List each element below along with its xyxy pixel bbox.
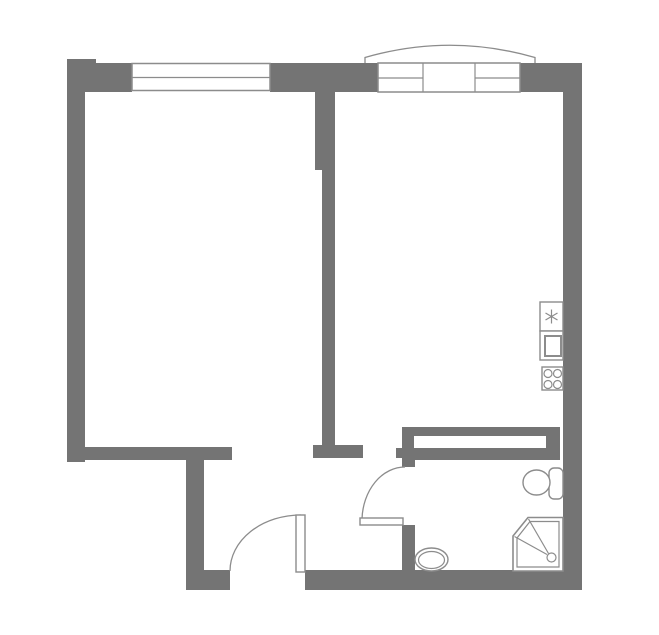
window-living-room	[132, 64, 270, 91]
shower	[513, 518, 563, 572]
top-wall-middle	[270, 63, 378, 92]
interior-wall-lower	[322, 170, 335, 448]
floor-plan-svg	[0, 0, 659, 635]
floor-plan	[0, 0, 659, 635]
interior-wall-foot	[313, 445, 363, 458]
interior-wall-upper	[315, 92, 335, 170]
entrance-door	[230, 515, 305, 572]
built-in-wardrobe	[402, 427, 560, 448]
balcony-outline	[365, 45, 535, 63]
toilet	[523, 468, 563, 499]
bathroom-wall-lower	[402, 525, 415, 571]
top-wall-left	[96, 63, 132, 92]
hall-west-wall	[186, 447, 204, 590]
kitchen-sink	[540, 331, 563, 360]
bathroom-north-wall	[402, 448, 560, 460]
washbasin	[415, 548, 448, 571]
stove	[542, 367, 563, 390]
top-left-corner-block	[67, 59, 96, 92]
left-wall	[67, 92, 85, 462]
south-wall-right	[305, 570, 582, 590]
right-wall	[563, 92, 582, 590]
south-wall-left	[186, 570, 230, 590]
balcony-window-unit	[378, 63, 520, 92]
living-room-south-wall	[67, 447, 232, 460]
top-wall-right	[518, 63, 582, 92]
kitchen-appliance-star	[540, 302, 563, 331]
bathroom-door	[360, 467, 405, 525]
